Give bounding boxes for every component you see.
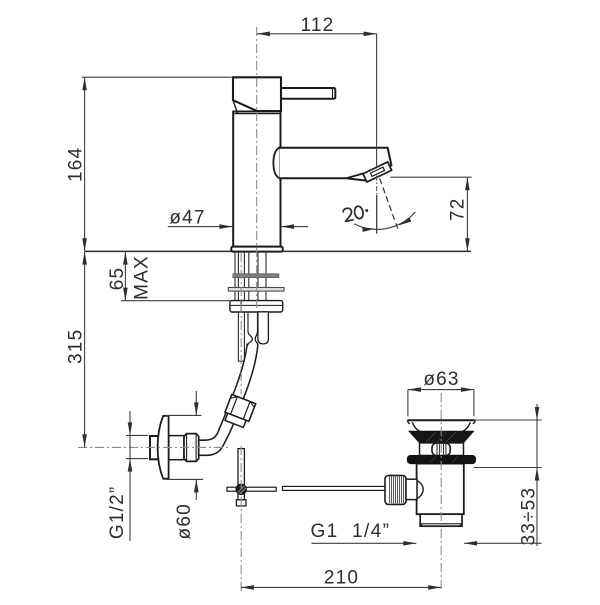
svg-text:G1 1/4”: G1 1/4” (311, 521, 391, 542)
svg-text:ø60: ø60 (174, 503, 195, 539)
svg-text:65: 65 (107, 267, 128, 291)
svg-text:315: 315 (65, 329, 86, 364)
svg-text:72: 72 (447, 198, 468, 222)
svg-text:ø47: ø47 (169, 207, 205, 228)
svg-text:33÷53: 33÷53 (518, 487, 539, 546)
svg-text:164: 164 (65, 147, 86, 182)
svg-text:ø63: ø63 (423, 369, 459, 390)
svg-text:MAX: MAX (132, 255, 153, 300)
svg-text:G1/2”: G1/2” (107, 486, 128, 540)
svg-text:210: 210 (324, 567, 359, 588)
svg-text:112: 112 (301, 15, 335, 36)
